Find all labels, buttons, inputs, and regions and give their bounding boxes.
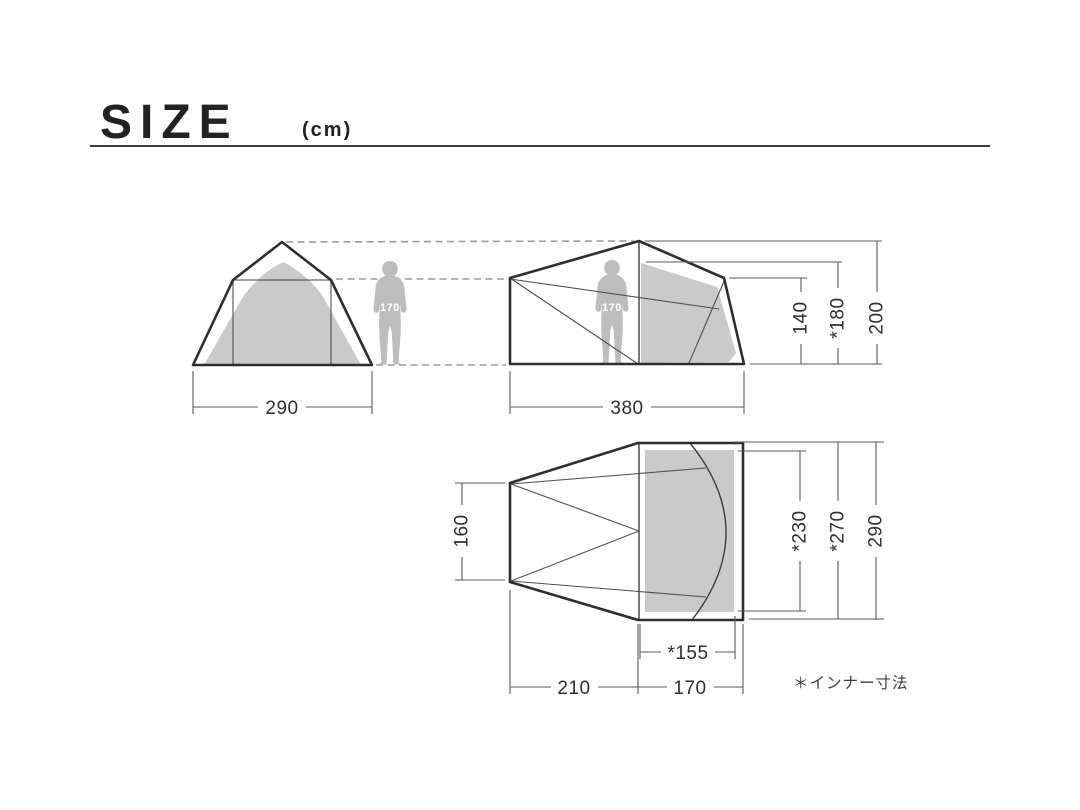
plan-right-dimensions: *230 *270 290 bbox=[733, 442, 887, 620]
eave-height-label: 140 bbox=[791, 301, 812, 334]
front-view: 170 290 bbox=[193, 242, 407, 419]
total-height-label: 200 bbox=[867, 301, 888, 334]
plan-inner-tent-fill bbox=[645, 450, 734, 612]
plan-view: 160 *230 *270 290 *155 210 170 bbox=[451, 442, 887, 699]
plan-vestibule-length-label: 210 bbox=[557, 678, 590, 699]
human-height-label: 170 bbox=[602, 302, 622, 314]
header: SIZE (cm) bbox=[90, 96, 990, 149]
plan-inner-depth-label: *230 bbox=[790, 510, 811, 551]
plan-inner-length-label: 170 bbox=[673, 678, 706, 699]
front-width-label: 290 bbox=[265, 398, 298, 419]
front-width-dimension: 290 bbox=[193, 371, 372, 419]
plan-left-dimension: 160 bbox=[451, 483, 505, 580]
ridge-projection-line bbox=[286, 241, 634, 242]
plan-inner-door-width-label: *155 bbox=[667, 643, 708, 664]
front-inner-tent-fill bbox=[204, 262, 361, 365]
plan-total-depth-label: 290 bbox=[866, 514, 887, 547]
page-title-unit: (cm) bbox=[302, 119, 352, 141]
side-view: 170 380 140 *180 200 bbox=[510, 241, 888, 419]
inner-dimension-footnote: ＊インナー寸法 bbox=[793, 674, 909, 692]
inner-height-label: *180 bbox=[828, 297, 849, 338]
plan-left-depth-label: 160 bbox=[452, 514, 473, 547]
front-human-figure: 170 bbox=[373, 261, 406, 365]
tent-size-diagram: SIZE (cm) 170 290 170 bbox=[0, 0, 1080, 810]
plan-outer-inner-depth-label: *270 bbox=[828, 510, 849, 551]
side-width-dimension: 380 bbox=[510, 371, 744, 419]
human-height-label: 170 bbox=[380, 302, 400, 314]
size-diagram-page: SIZE (cm) 170 290 170 bbox=[0, 0, 1080, 810]
page-title: SIZE bbox=[100, 96, 239, 149]
side-width-label: 380 bbox=[610, 398, 643, 419]
